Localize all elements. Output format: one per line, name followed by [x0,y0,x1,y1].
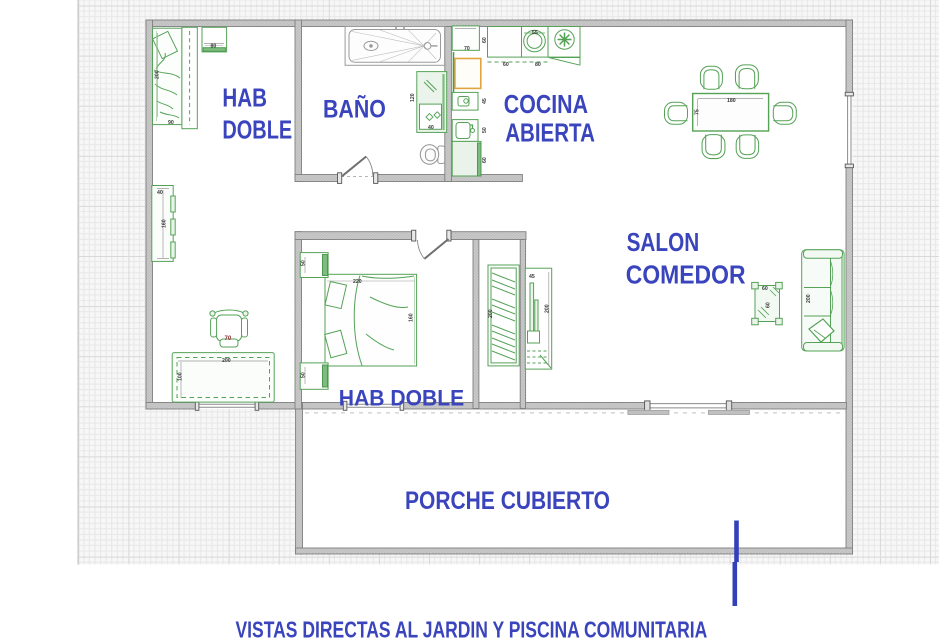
svg-text:50: 50 [301,372,307,378]
svg-text:PORCHE CUBIERTO: PORCHE CUBIERTO [405,487,610,515]
svg-text:COCINA: COCINA [504,89,588,119]
svg-text:200: 200 [488,309,494,318]
svg-text:200: 200 [155,70,161,79]
svg-text:45: 45 [529,274,535,280]
svg-text:HAB: HAB [222,82,267,112]
svg-text:50: 50 [482,127,488,133]
svg-text:40: 40 [428,125,434,131]
svg-text:60: 60 [503,62,509,68]
svg-text:SALON: SALON [627,227,700,257]
svg-text:60: 60 [482,37,488,43]
svg-text:75: 75 [695,109,701,115]
svg-text:45: 45 [482,98,488,104]
svg-text:70: 70 [225,336,232,342]
svg-text:40: 40 [157,190,163,196]
svg-text:200: 200 [806,294,812,303]
svg-text:DOBLE: DOBLE [222,115,292,145]
svg-text:60: 60 [482,157,488,163]
svg-text:70: 70 [464,46,470,52]
svg-text:50: 50 [301,260,307,266]
svg-text:90: 90 [168,120,174,126]
svg-text:HAB DOBLE: HAB DOBLE [339,386,464,411]
svg-text:180: 180 [727,98,736,104]
svg-text:VISTAS DIRECTAS AL JARDIN Y PI: VISTAS DIRECTAS AL JARDIN Y PISCINA COMU… [236,616,708,642]
svg-text:COMEDOR: COMEDOR [626,260,746,290]
svg-text:ABIERTA: ABIERTA [505,117,595,147]
svg-text:220: 220 [353,279,362,285]
svg-text:BAÑO: BAÑO [323,94,386,124]
svg-text:80: 80 [535,62,541,68]
svg-text:100: 100 [178,372,184,381]
svg-text:200: 200 [545,304,551,313]
svg-text:160: 160 [162,219,168,228]
svg-text:55: 55 [532,30,538,36]
svg-text:60: 60 [762,286,768,292]
svg-text:80: 80 [211,44,217,50]
svg-text:60: 60 [766,302,772,308]
svg-text:200: 200 [222,358,231,364]
svg-text:120: 120 [410,93,416,102]
svg-text:160: 160 [409,313,415,322]
